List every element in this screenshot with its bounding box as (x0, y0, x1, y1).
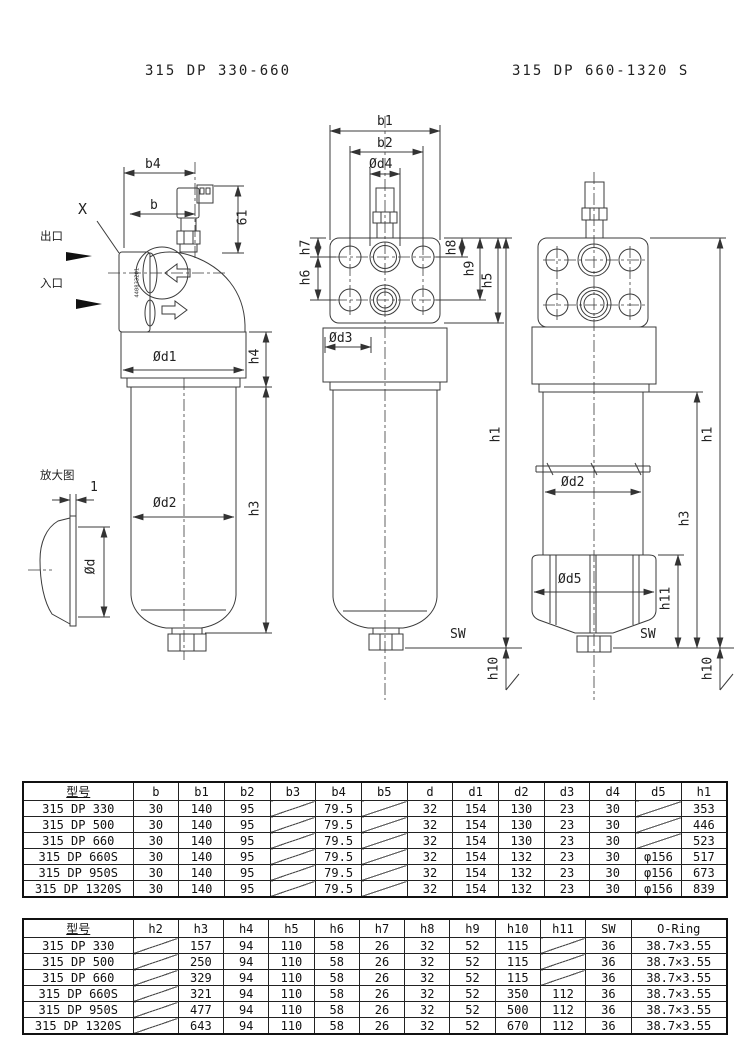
value-cell (133, 970, 178, 986)
value-cell: 32 (405, 954, 450, 970)
dim-label-od: Ød (85, 550, 98, 584)
column-header: 型号 (23, 919, 133, 938)
value-cell: φ156 (636, 865, 682, 881)
value-cell: 140 (179, 833, 225, 849)
dim-label-od5: Ød5 (558, 573, 581, 586)
value-cell: 94 (224, 986, 269, 1002)
value-cell: 58 (314, 938, 359, 954)
value-cell: 26 (359, 1002, 404, 1018)
table-row: 315 DP 950S47794110582632525001123638.7×… (23, 1002, 727, 1018)
value-cell: 52 (450, 938, 495, 954)
value-cell: 112 (540, 1002, 585, 1018)
middle-filter-front-view (310, 116, 522, 700)
value-cell: 95 (224, 817, 270, 833)
value-cell: 154 (453, 801, 499, 817)
value-cell: 110 (269, 954, 314, 970)
dim-label-b1: b1 (377, 115, 393, 128)
value-cell: 32 (405, 1002, 450, 1018)
value-cell: 58 (314, 986, 359, 1002)
column-header: h2 (133, 919, 178, 938)
value-cell: φ156 (636, 881, 682, 898)
value-cell (361, 881, 407, 898)
value-cell (270, 881, 316, 898)
value-cell: 32 (407, 865, 453, 881)
value-cell: 95 (224, 833, 270, 849)
column-header: d3 (544, 782, 590, 801)
value-cell (133, 1002, 178, 1018)
value-cell: 140 (179, 865, 225, 881)
value-cell: 132 (499, 849, 545, 865)
value-cell: 58 (314, 1018, 359, 1035)
value-cell: 79.5 (316, 801, 362, 817)
dim-label-h1-middle: h1 (490, 418, 503, 452)
value-cell: 110 (269, 1002, 314, 1018)
table-row: 315 DP 1320S64394110582632526701123638.7… (23, 1018, 727, 1035)
column-header: b5 (361, 782, 407, 801)
column-header: b2 (224, 782, 270, 801)
value-cell: 79.5 (316, 865, 362, 881)
value-cell: 30 (133, 881, 179, 898)
value-cell: 130 (499, 801, 545, 817)
value-cell: 350 (495, 986, 540, 1002)
value-cell: 94 (224, 970, 269, 986)
value-cell: 110 (269, 970, 314, 986)
value-cell: 500 (495, 1002, 540, 1018)
dim-label-h11: h11 (660, 582, 673, 616)
value-cell: 26 (359, 970, 404, 986)
value-cell: 38.7×3.55 (631, 986, 727, 1002)
value-cell: 154 (453, 849, 499, 865)
dimension-table-2: 型号h2h3h4h5h6h7h8h9h10h11SWO-Ring315 DP 3… (22, 918, 728, 1035)
value-cell: 30 (133, 801, 179, 817)
dim-label-od1: Ød1 (153, 351, 176, 364)
value-cell: 30 (133, 849, 179, 865)
value-cell: 329 (178, 970, 223, 986)
table-row: 315 DP 500301409579.5321541302330446 (23, 817, 727, 833)
value-cell: 140 (179, 801, 225, 817)
model-cell: 315 DP 500 (23, 817, 133, 833)
value-cell: 52 (450, 1018, 495, 1035)
value-cell: 38.7×3.55 (631, 954, 727, 970)
value-cell: 132 (499, 865, 545, 881)
dim-label-h9: h9 (464, 252, 477, 286)
dim-label-b: b (150, 199, 158, 212)
value-cell: 36 (586, 986, 631, 1002)
value-cell: 130 (499, 833, 545, 849)
table-row: 315 DP 660S301409579.5321541322330φ15651… (23, 849, 727, 865)
column-header: h7 (359, 919, 404, 938)
value-cell: 79.5 (316, 849, 362, 865)
value-cell: 112 (540, 986, 585, 1002)
model-cell: 315 DP 660S (23, 849, 133, 865)
table-row: 315 DP 660301409579.5321541302330523 (23, 833, 727, 849)
column-header: d2 (499, 782, 545, 801)
value-cell: 23 (544, 881, 590, 898)
value-cell (270, 849, 316, 865)
value-cell: 79.5 (316, 881, 362, 898)
dim-label-h5: h5 (482, 264, 495, 298)
value-cell: 839 (681, 881, 727, 898)
value-cell (540, 954, 585, 970)
value-cell (636, 817, 682, 833)
dim-label-b4: b4 (145, 158, 161, 171)
value-cell: 30 (133, 865, 179, 881)
value-cell: 23 (544, 865, 590, 881)
value-cell: 38.7×3.55 (631, 938, 727, 954)
value-cell (361, 801, 407, 817)
value-cell (361, 849, 407, 865)
value-cell: 110 (269, 1018, 314, 1035)
value-cell: 79.5 (316, 817, 362, 833)
value-cell: 94 (224, 1002, 269, 1018)
value-cell: 321 (178, 986, 223, 1002)
value-cell: 52 (450, 970, 495, 986)
value-cell: 52 (450, 986, 495, 1002)
value-cell: 36 (586, 938, 631, 954)
value-cell: 32 (407, 881, 453, 898)
value-cell: 140 (179, 817, 225, 833)
column-header: h3 (178, 919, 223, 938)
value-cell: 30 (590, 817, 636, 833)
value-cell: φ156 (636, 849, 682, 865)
value-cell: 32 (405, 938, 450, 954)
column-header: h6 (314, 919, 359, 938)
column-header: b1 (179, 782, 225, 801)
column-header: 型号 (23, 782, 133, 801)
value-cell: 23 (544, 849, 590, 865)
value-cell: 38.7×3.55 (631, 1002, 727, 1018)
value-cell: 30 (590, 849, 636, 865)
dim-label-h10-right: h10 (702, 652, 715, 686)
value-cell: 132 (499, 881, 545, 898)
dim-label-h4: h4 (249, 340, 262, 374)
dim-label-b2: b2 (377, 137, 393, 150)
value-cell: 30 (133, 817, 179, 833)
column-header: b3 (270, 782, 316, 801)
value-cell: 58 (314, 970, 359, 986)
column-header: O-Ring (631, 919, 727, 938)
value-cell: 523 (681, 833, 727, 849)
dim-label-od2-right: Ød2 (561, 476, 584, 489)
value-cell (361, 865, 407, 881)
value-cell: 38.7×3.55 (631, 970, 727, 986)
value-cell: 517 (681, 849, 727, 865)
dim-label-h6: h6 (300, 261, 313, 295)
outlet-label: 出口 (40, 231, 63, 243)
value-cell: 26 (359, 938, 404, 954)
value-cell: 52 (450, 954, 495, 970)
column-header: d (407, 782, 453, 801)
model-cell: 315 DP 660S (23, 986, 133, 1002)
model-cell: 315 DP 660 (23, 970, 133, 986)
value-cell: 95 (224, 849, 270, 865)
part-number-vertical: 440833201 (135, 253, 141, 313)
value-cell: 154 (453, 865, 499, 881)
dim-label-h7: h7 (300, 231, 313, 265)
value-cell: 250 (178, 954, 223, 970)
value-cell: 32 (407, 849, 453, 865)
value-cell: 36 (586, 970, 631, 986)
value-cell: 52 (450, 1002, 495, 1018)
value-cell: 36 (586, 1018, 631, 1035)
column-header: h1 (681, 782, 727, 801)
value-cell: 112 (540, 1018, 585, 1035)
value-cell: 38.7×3.55 (631, 1018, 727, 1035)
value-cell: 79.5 (316, 833, 362, 849)
value-cell: 94 (224, 938, 269, 954)
value-cell: 140 (179, 881, 225, 898)
value-cell: 94 (224, 1018, 269, 1035)
model-cell: 315 DP 950S (23, 865, 133, 881)
table-header-row: 型号bb1b2b3b4b5dd1d2d3d4d5h1 (23, 782, 727, 801)
value-cell (270, 833, 316, 849)
value-cell (133, 1018, 178, 1035)
model-cell: 315 DP 330 (23, 938, 133, 954)
value-cell: 30 (590, 833, 636, 849)
column-header: h10 (495, 919, 540, 938)
dim-label-61: 61 (237, 201, 250, 235)
column-header: d4 (590, 782, 636, 801)
technical-drawing-canvas (0, 0, 750, 770)
value-cell: 140 (179, 849, 225, 865)
model-cell: 315 DP 950S (23, 1002, 133, 1018)
value-cell: 110 (269, 938, 314, 954)
dimension-table-1: 型号bb1b2b3b4b5dd1d2d3d4d5h1315 DP 3303014… (22, 781, 728, 898)
table-row: 315 DP 330301409579.5321541302330353 (23, 801, 727, 817)
column-header: d1 (453, 782, 499, 801)
datasheet-page: { "titles": { "left": "315 DP 330-660", … (0, 0, 750, 1048)
value-cell (540, 970, 585, 986)
value-cell: 673 (681, 865, 727, 881)
value-cell: 115 (495, 938, 540, 954)
dim-label-h8: h8 (446, 231, 459, 265)
model-cell: 315 DP 500 (23, 954, 133, 970)
table-row: 315 DP 1320S301409579.5321541322330φ1568… (23, 881, 727, 898)
column-header: b4 (316, 782, 362, 801)
value-cell: 36 (586, 1002, 631, 1018)
value-cell (270, 801, 316, 817)
value-cell (270, 817, 316, 833)
value-cell: 95 (224, 865, 270, 881)
value-cell: 30 (590, 801, 636, 817)
value-cell: 353 (681, 801, 727, 817)
value-cell: 58 (314, 1002, 359, 1018)
column-header: h9 (450, 919, 495, 938)
dim-label-od3: Ød3 (329, 332, 352, 345)
value-cell (636, 801, 682, 817)
value-cell: 94 (224, 954, 269, 970)
value-cell: 26 (359, 1018, 404, 1035)
value-cell: 32 (405, 986, 450, 1002)
value-cell: 32 (407, 801, 453, 817)
column-header: d5 (636, 782, 682, 801)
column-header: h8 (405, 919, 450, 938)
value-cell: 32 (407, 817, 453, 833)
enlarged-view-label: 放大图 (40, 470, 75, 482)
dim-label-h3-left: h3 (249, 492, 262, 526)
value-cell: 130 (499, 817, 545, 833)
model-cell: 315 DP 1320S (23, 881, 133, 898)
value-cell: 23 (544, 801, 590, 817)
value-cell: 154 (453, 817, 499, 833)
dim-label-1: 1 (90, 481, 98, 494)
dim-label-od2-left: Ød2 (153, 497, 176, 510)
value-cell: 154 (453, 833, 499, 849)
table-header-row: 型号h2h3h4h5h6h7h8h9h10h11SWO-Ring (23, 919, 727, 938)
table-row: 315 DP 50025094110582632521153638.7×3.55 (23, 954, 727, 970)
dim-label-h10-middle: h10 (488, 652, 501, 686)
value-cell (133, 938, 178, 954)
value-cell: 36 (586, 954, 631, 970)
column-header: h4 (224, 919, 269, 938)
table-row: 315 DP 950S301409579.5321541322330φ15667… (23, 865, 727, 881)
inlet-label: 入口 (40, 278, 63, 290)
value-cell (540, 938, 585, 954)
model-cell: 315 DP 1320S (23, 1018, 133, 1035)
value-cell (133, 954, 178, 970)
value-cell (133, 986, 178, 1002)
column-header: h5 (269, 919, 314, 938)
value-cell: 30 (590, 881, 636, 898)
value-cell: 30 (133, 833, 179, 849)
value-cell (361, 833, 407, 849)
column-header: b (133, 782, 179, 801)
value-cell: 643 (178, 1018, 223, 1035)
value-cell: 95 (224, 881, 270, 898)
value-cell: 670 (495, 1018, 540, 1035)
value-cell: 115 (495, 970, 540, 986)
value-cell: 32 (405, 970, 450, 986)
table-row: 315 DP 660S32194110582632523501123638.7×… (23, 986, 727, 1002)
value-cell: 58 (314, 954, 359, 970)
left-filter-side-view (28, 162, 272, 660)
value-cell (361, 817, 407, 833)
wrench-size-label-right: SW (640, 628, 656, 641)
value-cell: 95 (224, 801, 270, 817)
value-cell: 154 (453, 881, 499, 898)
value-cell: 30 (590, 865, 636, 881)
table-row: 315 DP 66032994110582632521153638.7×3.55 (23, 970, 727, 986)
value-cell: 23 (544, 833, 590, 849)
value-cell (270, 865, 316, 881)
column-header: h11 (540, 919, 585, 938)
value-cell: 477 (178, 1002, 223, 1018)
model-cell: 315 DP 330 (23, 801, 133, 817)
value-cell: 32 (407, 833, 453, 849)
value-cell: 446 (681, 817, 727, 833)
column-header: SW (586, 919, 631, 938)
value-cell: 23 (544, 817, 590, 833)
value-cell: 115 (495, 954, 540, 970)
model-cell: 315 DP 660 (23, 833, 133, 849)
surface-mark-x: X (78, 202, 87, 217)
value-cell: 32 (405, 1018, 450, 1035)
value-cell: 26 (359, 986, 404, 1002)
table-row: 315 DP 33015794110582632521153638.7×3.55 (23, 938, 727, 954)
dim-label-od4: Ød4 (369, 158, 392, 171)
wrench-size-label-middle: SW (450, 628, 466, 641)
dim-label-h1-right: h1 (702, 418, 715, 452)
value-cell (636, 833, 682, 849)
value-cell: 157 (178, 938, 223, 954)
dim-label-h3-right: h3 (679, 502, 692, 536)
value-cell: 26 (359, 954, 404, 970)
value-cell: 110 (269, 986, 314, 1002)
